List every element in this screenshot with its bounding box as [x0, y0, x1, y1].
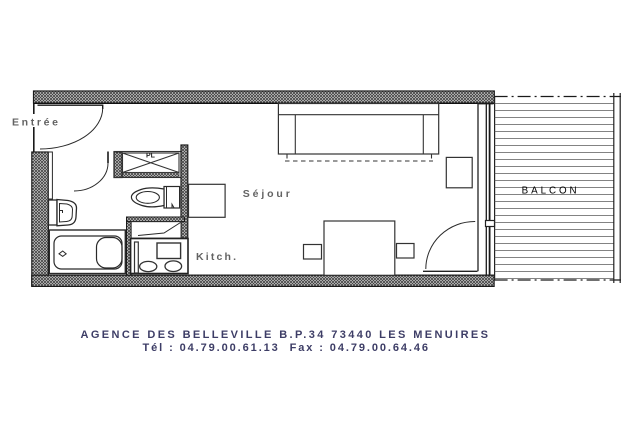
svg-text:Tél : 04.79.00.61.13 Fax : 04: Tél : 04.79.00.61.13 Fax : 04.79.00.64.4… — [143, 342, 429, 354]
svg-text:PL: PL — [146, 153, 156, 160]
svg-text:Séjour: Séjour — [243, 188, 290, 200]
svg-text:AGENCE DES BELLEVILLE B.P.34 7: AGENCE DES BELLEVILLE B.P.34 73440 LES M… — [81, 329, 489, 341]
svg-text:Kitch.: Kitch. — [196, 251, 236, 263]
